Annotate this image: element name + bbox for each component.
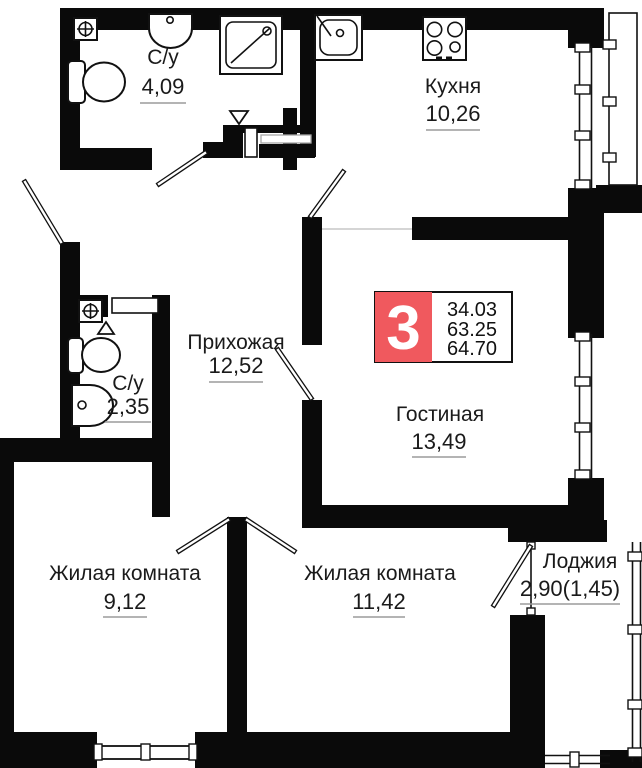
room-name: Жилая комната (304, 562, 456, 585)
room-area: 4,09 (142, 74, 185, 99)
room-name: Лоджия (543, 550, 617, 573)
room-area: 11,42 (352, 589, 405, 614)
room-area: 9,12 (104, 589, 147, 614)
area-badge: 3 34.03 63.25 64.70 (375, 292, 512, 363)
room-name: Кухня (425, 75, 481, 98)
toilet-icon (68, 61, 125, 103)
room-label-hallway: Прихожая 12,52 (187, 331, 284, 382)
badge-rooms-count: 3 (386, 294, 420, 363)
vent-icon-small-bathroom (79, 300, 102, 322)
door-swing-hall-left (25, 182, 61, 242)
room-area: 12,52 (208, 353, 263, 378)
vent-icon (74, 18, 97, 40)
room-area: 10,26 (425, 101, 480, 126)
room-name: С/у (112, 372, 144, 395)
bathroom-small-triangle-icon (98, 322, 114, 334)
room-name: С/у (147, 46, 179, 69)
badge-area-line-3: 64.70 (447, 338, 497, 360)
door-swing-living-room (278, 350, 311, 398)
bathroom-small-door-leaf (112, 298, 158, 313)
room-name: Гостиная (396, 403, 484, 426)
room-label-bedroom-left: Жилая комната 9,12 (49, 562, 201, 617)
room-label-bathroom-top: С/у 4,09 (140, 46, 186, 103)
room-name: Жилая комната (49, 562, 201, 585)
entrance-triangle-icon (230, 111, 248, 124)
window-bedroom-left (94, 744, 197, 760)
sink-icon (149, 14, 192, 48)
room-area: 13,49 (411, 429, 466, 454)
room-label-bathroom-small: С/у 2,35 (105, 372, 151, 422)
window-kitchen (575, 43, 592, 190)
toilet-icon-small-bathroom (68, 338, 120, 373)
door-swing-bedroom-left (179, 520, 228, 551)
kitchen-sink-icon (315, 15, 362, 60)
room-label-bedroom-right: Жилая комната 11,42 (304, 562, 456, 617)
door-swing-bedroom-right (247, 520, 294, 551)
stove-icon (423, 17, 466, 60)
door-swing-bathroom-top (159, 153, 205, 184)
room-name: Прихожая (187, 331, 284, 354)
room-area: 2,90(1,45) (520, 576, 620, 601)
neighbor-loggia-glazing (603, 13, 637, 185)
room-label-loggia: Лоджия 2,90(1,45) (520, 550, 620, 604)
room-area: 2,35 (107, 394, 150, 419)
room-label-living-room: Гостиная 13,49 (396, 403, 484, 457)
badge-area-line-1: 34.03 (447, 299, 497, 321)
room-label-kitchen: Кухня 10,26 (425, 75, 481, 130)
shower-icon (220, 16, 282, 74)
window-living-room (575, 332, 592, 480)
floor-plan: С/у 4,09 Кухня 10,26 Прихожая 12,52 С/у … (0, 0, 642, 768)
door-swing-kitchen (311, 172, 343, 216)
